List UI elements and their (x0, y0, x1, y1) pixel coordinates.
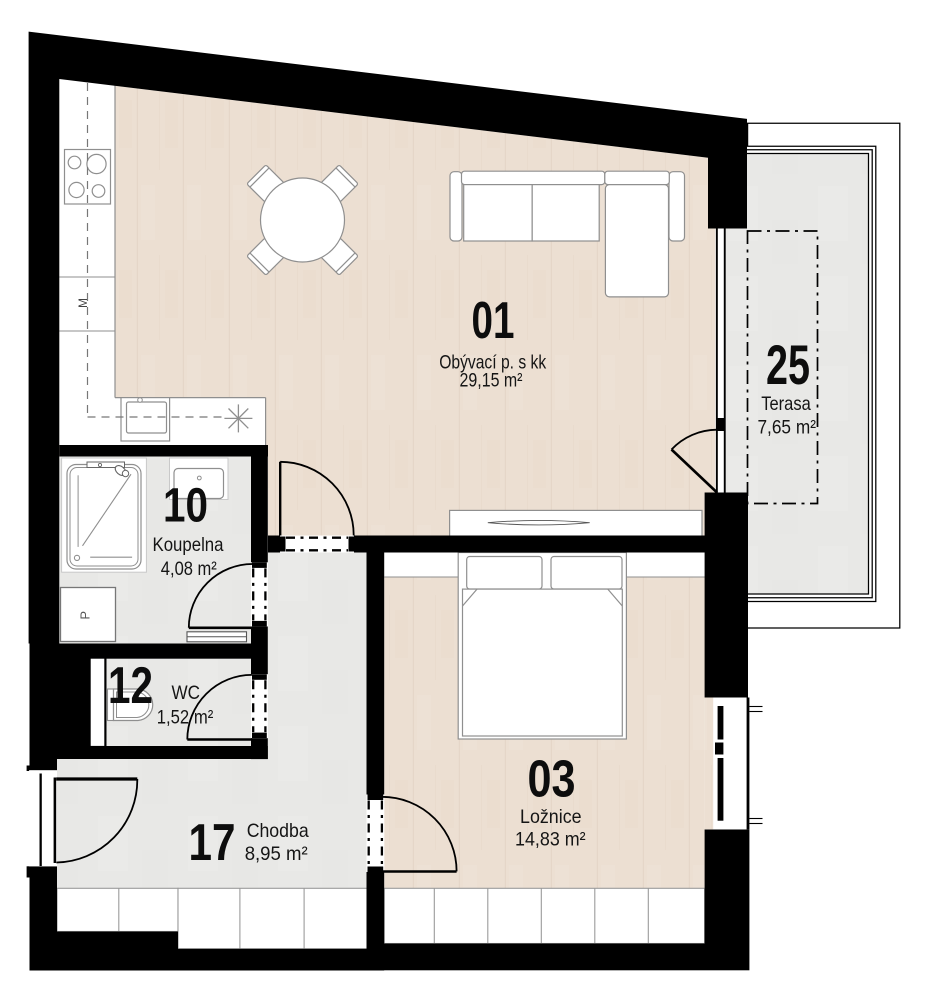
svg-text:25: 25 (766, 333, 810, 396)
svg-text:4,08 m²: 4,08 m² (161, 558, 217, 580)
svg-text:M: M (76, 298, 90, 308)
svg-text:8,95 m²: 8,95 m² (245, 843, 308, 865)
svg-text:Chodba: Chodba (247, 820, 309, 842)
svg-text:14,83 m²: 14,83 m² (515, 829, 586, 851)
svg-text:WC: WC (172, 682, 201, 704)
svg-text:7,65 m²: 7,65 m² (757, 417, 816, 439)
svg-text:12: 12 (108, 657, 153, 715)
svg-text:17: 17 (189, 814, 236, 872)
svg-text:01: 01 (472, 292, 515, 350)
svg-text:29,15 m²: 29,15 m² (460, 370, 523, 392)
svg-text:Terasa: Terasa (761, 393, 811, 415)
svg-text:1,52 m²: 1,52 m² (157, 707, 214, 729)
svg-text:Koupelna: Koupelna (153, 534, 224, 556)
svg-text:10: 10 (163, 480, 208, 533)
svg-text:Ložnice: Ložnice (520, 806, 582, 828)
svg-text:P: P (77, 611, 92, 620)
svg-text:03: 03 (528, 751, 576, 809)
